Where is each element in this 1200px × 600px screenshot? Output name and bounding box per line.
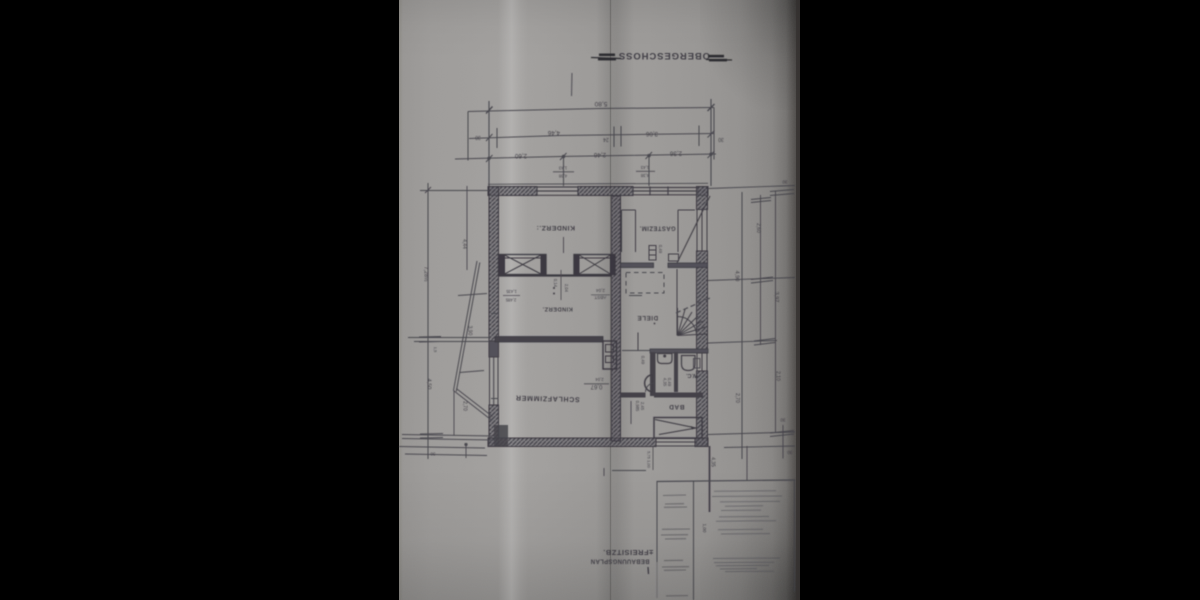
svg-text:2,70: 2,70: [462, 401, 468, 411]
svg-text:KINDERZ.:: KINDERZ.:: [536, 224, 575, 231]
svg-text:0,985: 0,985: [635, 401, 640, 412]
svg-text:4,38: 4,38: [640, 173, 649, 178]
svg-text:0,14: 0,14: [553, 279, 558, 288]
svg-text:BAD: BAD: [669, 403, 685, 410]
svg-text:30: 30: [782, 180, 788, 185]
svg-text:2,60: 2,60: [514, 152, 527, 159]
svg-text:2,485: 2,485: [505, 298, 516, 303]
svg-text:30: 30: [787, 450, 793, 455]
svg-text:4,46: 4,46: [547, 129, 560, 136]
svg-text:BEBAUUNGSPLAN: BEBAUUNGSPLAN: [591, 558, 650, 564]
svg-text:2,70: 2,70: [734, 393, 740, 403]
svg-text:0,49: 0,49: [641, 356, 646, 365]
svg-text:2,46: 2,46: [593, 151, 606, 158]
svg-text:KINDERZ.: KINDERZ.: [542, 306, 573, 312]
svg-text:1,5: 1,5: [433, 347, 438, 353]
svg-text:30: 30: [718, 136, 724, 142]
svg-text:1,43: 1,43: [640, 165, 649, 170]
svg-text:OBERGESCHOSS: OBERGESCHOSS: [618, 50, 710, 61]
svg-text:30: 30: [780, 418, 786, 423]
svg-text:1,435: 1,435: [506, 289, 517, 294]
svg-text:0,49: 0,49: [658, 245, 663, 254]
svg-text:2,04: 2,04: [595, 377, 604, 382]
svg-text:3,97: 3,97: [773, 292, 779, 303]
svg-text:7,28½: 7,28½: [423, 266, 430, 282]
svg-text:2,10: 2,10: [775, 371, 781, 381]
svg-text:4,35: 4,35: [663, 378, 668, 387]
svg-text:DIELE: DIELE: [637, 314, 658, 321]
svg-text:0,67: 0,67: [590, 383, 602, 389]
svg-text:1,00: 1,00: [702, 524, 707, 533]
svg-text:4,50: 4,50: [426, 379, 432, 390]
svg-text:W.C.: W.C.: [686, 372, 698, 378]
svg-text:1,00: 1,00: [647, 460, 652, 469]
svg-text:±FREISITZB.: ±FREISITZB.: [603, 548, 653, 557]
svg-text:1,43: 1,43: [558, 166, 567, 171]
svg-text:2,04: 2,04: [596, 288, 605, 293]
svg-text:2,04: 2,04: [564, 284, 569, 293]
svg-text:4,44: 4,44: [461, 239, 467, 249]
svg-text:2,36: 2,36: [669, 150, 682, 157]
svg-text:3,06: 3,06: [645, 130, 658, 137]
svg-text:4,35: 4,35: [710, 457, 716, 467]
svg-text:4,38: 4,38: [558, 174, 567, 179]
svg-text:0,49: 0,49: [667, 378, 672, 387]
svg-text:GASTEZIM.: GASTEZIM.: [639, 225, 675, 231]
svg-text:5,75: 5,75: [647, 451, 652, 460]
svg-text:2,60: 2,60: [755, 223, 761, 233]
svg-text:5,80: 5,80: [594, 100, 607, 107]
svg-text:24: 24: [603, 136, 609, 142]
svg-text:30: 30: [430, 452, 436, 457]
svg-text:30: 30: [475, 134, 481, 140]
svg-text:2,45: 2,45: [640, 402, 645, 411]
svg-text:ABST.: ABST.: [594, 295, 607, 300]
svg-text:3,90: 3,90: [467, 326, 473, 336]
